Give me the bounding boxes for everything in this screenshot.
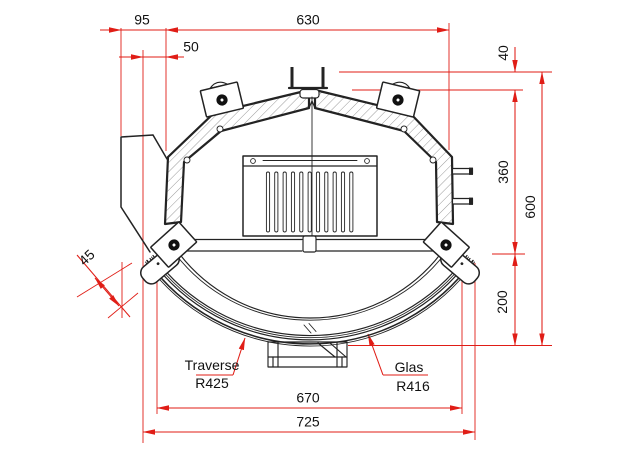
body-cross-section [121,67,483,367]
dim-text-95: 95 [134,12,150,28]
mounting-tabs-right [453,168,474,205]
glas-label-name: Glas [395,359,424,375]
dim-text-360: 360 [495,160,511,184]
technical-drawing-page: 95 630 50 40 360 600 200 45 670 725 Trav… [0,0,624,460]
grate-bottom-tab [303,236,316,252]
dim-text-40: 40 [495,45,511,61]
glass-break-marks [304,324,316,334]
apex-bracket [300,90,319,99]
traverse-label-name: Traverse [185,357,240,373]
dim-text-600: 600 [522,195,538,219]
dim-text-725: 725 [296,414,320,430]
inner-arcs [175,252,445,320]
dim-text-45: 45 [75,246,97,268]
dim-text-200: 200 [494,290,510,314]
traverse-label: Traverse R425 [185,357,240,391]
technical-drawing: 95 630 50 40 360 600 200 45 670 725 Trav… [0,0,624,460]
traverse-label-radius: R425 [195,375,229,391]
glas-label-radius: R416 [396,378,430,394]
dim-text-630: 630 [296,12,320,28]
glas-label: Glas R416 [395,359,430,394]
deflector-flap [121,135,167,252]
dim-text-670: 670 [296,390,320,406]
glass-arcs [150,256,470,340]
dim-text-50: 50 [183,39,199,55]
